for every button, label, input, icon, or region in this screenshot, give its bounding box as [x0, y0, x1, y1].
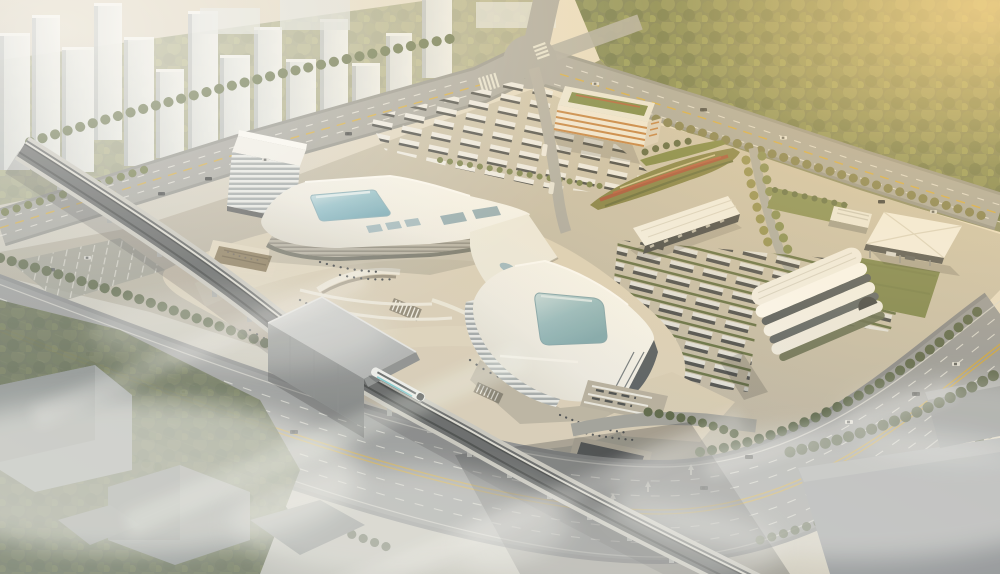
- warm-tint: [0, 0, 1000, 574]
- aerial-rendering: Aerial architectural rendering of an int…: [0, 0, 1000, 574]
- rendering-canvas: Aerial architectural rendering of an int…: [0, 0, 1000, 574]
